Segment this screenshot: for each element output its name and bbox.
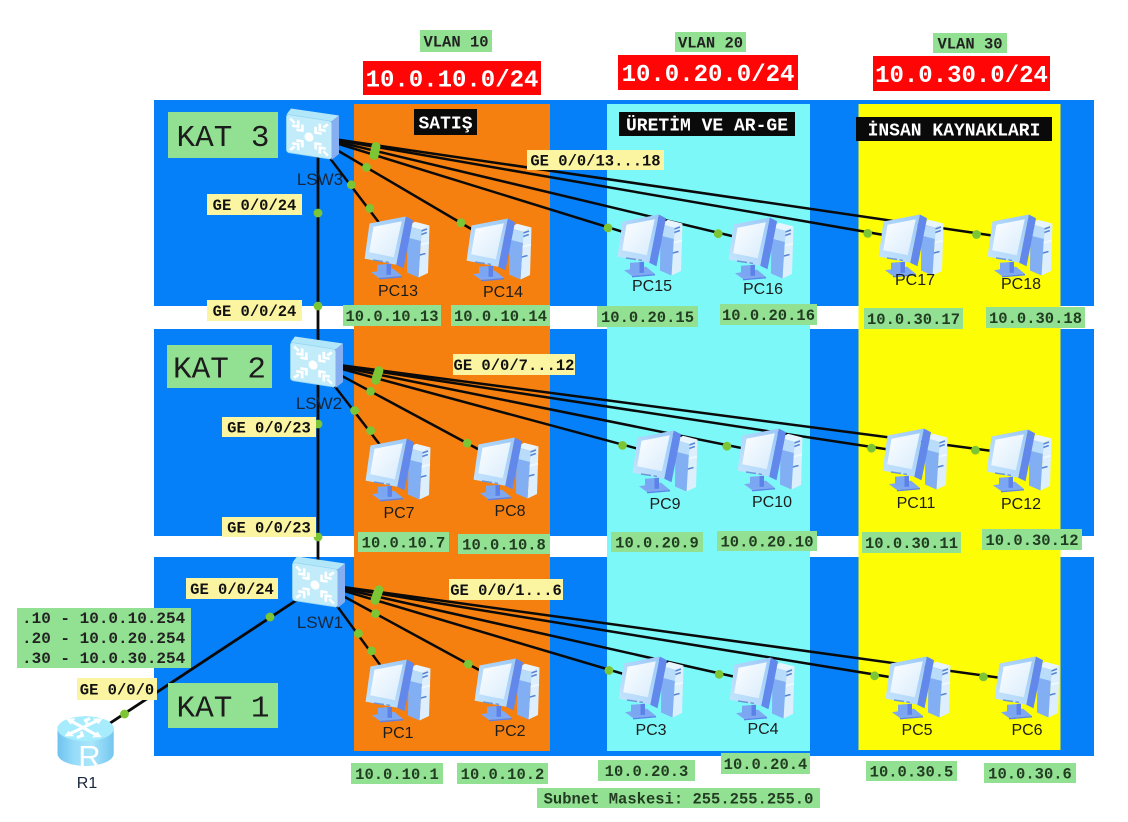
svg-text:PC8: PC8 — [494, 503, 525, 520]
svg-text:PC11: PC11 — [897, 495, 936, 512]
svg-text:Subnet Maskesi: 255.255.255.0: Subnet Maskesi: 255.255.255.0 — [544, 791, 814, 809]
svg-text:PC9: PC9 — [649, 496, 680, 513]
svg-text:ÜRETİM VE AR-GE: ÜRETİM VE AR-GE — [626, 116, 788, 137]
svg-text:10.0.30.18: 10.0.30.18 — [989, 310, 1082, 328]
svg-text:GE 0/0/7...12: GE 0/0/7...12 — [454, 357, 575, 375]
svg-text:PC7: PC7 — [383, 505, 414, 522]
svg-text:R1: R1 — [77, 775, 98, 792]
svg-text:10.0.20.9: 10.0.20.9 — [615, 535, 699, 553]
svg-text:GE 0/0/13...18: GE 0/0/13...18 — [530, 153, 660, 171]
svg-text:PC2: PC2 — [494, 723, 525, 740]
svg-text:10.0.20.3: 10.0.20.3 — [605, 763, 689, 781]
svg-text:10.0.20.16: 10.0.20.16 — [722, 307, 815, 325]
svg-text:10.0.10.13: 10.0.10.13 — [345, 308, 438, 326]
svg-text:10.0.20.10: 10.0.20.10 — [720, 534, 813, 552]
svg-text:10.0.10.0/24: 10.0.10.0/24 — [366, 68, 539, 95]
svg-text:LSW1: LSW1 — [297, 613, 343, 632]
svg-text:GE 0/0/23: GE 0/0/23 — [227, 420, 311, 438]
svg-text:10.0.30.5: 10.0.30.5 — [870, 764, 954, 782]
svg-text:PC6: PC6 — [1011, 722, 1042, 739]
svg-text:PC13: PC13 — [378, 283, 418, 300]
svg-text:.20 - 10.0.20.254: .20 - 10.0.20.254 — [22, 630, 186, 648]
svg-text:LSW2: LSW2 — [296, 394, 342, 413]
svg-text:PC12: PC12 — [1001, 496, 1041, 513]
svg-text:PC1: PC1 — [382, 725, 413, 742]
svg-text:PC14: PC14 — [483, 284, 523, 301]
svg-text:İNSAN KAYNAKLARI: İNSAN KAYNAKLARI — [868, 121, 1041, 142]
svg-text:10.0.20.4: 10.0.20.4 — [724, 756, 808, 774]
svg-text:VLAN 30: VLAN 30 — [937, 36, 1002, 54]
svg-text:GE 0/0/24: GE 0/0/24 — [213, 197, 297, 215]
svg-text:10.0.10.14: 10.0.10.14 — [454, 308, 547, 326]
svg-text:PC18: PC18 — [1001, 276, 1041, 293]
svg-text:GE 0/0/24: GE 0/0/24 — [190, 581, 274, 599]
svg-text:GE 0/0/24: GE 0/0/24 — [213, 303, 297, 321]
svg-text:.30 - 10.0.30.254: .30 - 10.0.30.254 — [22, 650, 186, 668]
svg-text:PC16: PC16 — [743, 281, 783, 298]
svg-text:KAT 1: KAT 1 — [176, 692, 269, 727]
svg-text:10.0.30.17: 10.0.30.17 — [867, 311, 960, 329]
svg-text:LSW3: LSW3 — [297, 170, 343, 189]
svg-text:10.0.20.0/24: 10.0.20.0/24 — [622, 62, 795, 89]
svg-text:10.0.10.1: 10.0.10.1 — [355, 766, 439, 784]
svg-text:.10 - 10.0.10.254: .10 - 10.0.10.254 — [22, 610, 186, 628]
svg-text:PC10: PC10 — [752, 494, 792, 511]
svg-text:GE 0/0/1...6: GE 0/0/1...6 — [450, 582, 562, 600]
svg-text:10.0.10.2: 10.0.10.2 — [461, 766, 545, 784]
svg-text:GE 0/0/0: GE 0/0/0 — [80, 682, 154, 700]
svg-text:PC4: PC4 — [747, 721, 778, 738]
svg-text:VLAN 20: VLAN 20 — [678, 35, 743, 53]
svg-text:VLAN 10: VLAN 10 — [423, 34, 488, 52]
svg-text:PC15: PC15 — [632, 278, 672, 295]
svg-text:PC17: PC17 — [895, 272, 935, 289]
svg-text:PC3: PC3 — [635, 722, 666, 739]
svg-text:10.0.30.0/24: 10.0.30.0/24 — [875, 63, 1048, 90]
svg-text:GE 0/0/23: GE 0/0/23 — [227, 520, 311, 538]
svg-text:PC5: PC5 — [901, 722, 932, 739]
svg-text:10.0.10.7: 10.0.10.7 — [362, 535, 446, 553]
svg-text:KAT 2: KAT 2 — [173, 353, 266, 388]
svg-text:KAT 3: KAT 3 — [176, 121, 269, 156]
svg-text:10.0.30.11: 10.0.30.11 — [865, 535, 958, 553]
svg-text:10.0.20.15: 10.0.20.15 — [601, 309, 694, 327]
svg-text:SATIŞ: SATIŞ — [418, 115, 472, 135]
svg-text:10.0.30.12: 10.0.30.12 — [985, 532, 1078, 550]
svg-text:10.0.30.6: 10.0.30.6 — [988, 766, 1072, 784]
svg-text:10.0.10.8: 10.0.10.8 — [462, 537, 546, 555]
